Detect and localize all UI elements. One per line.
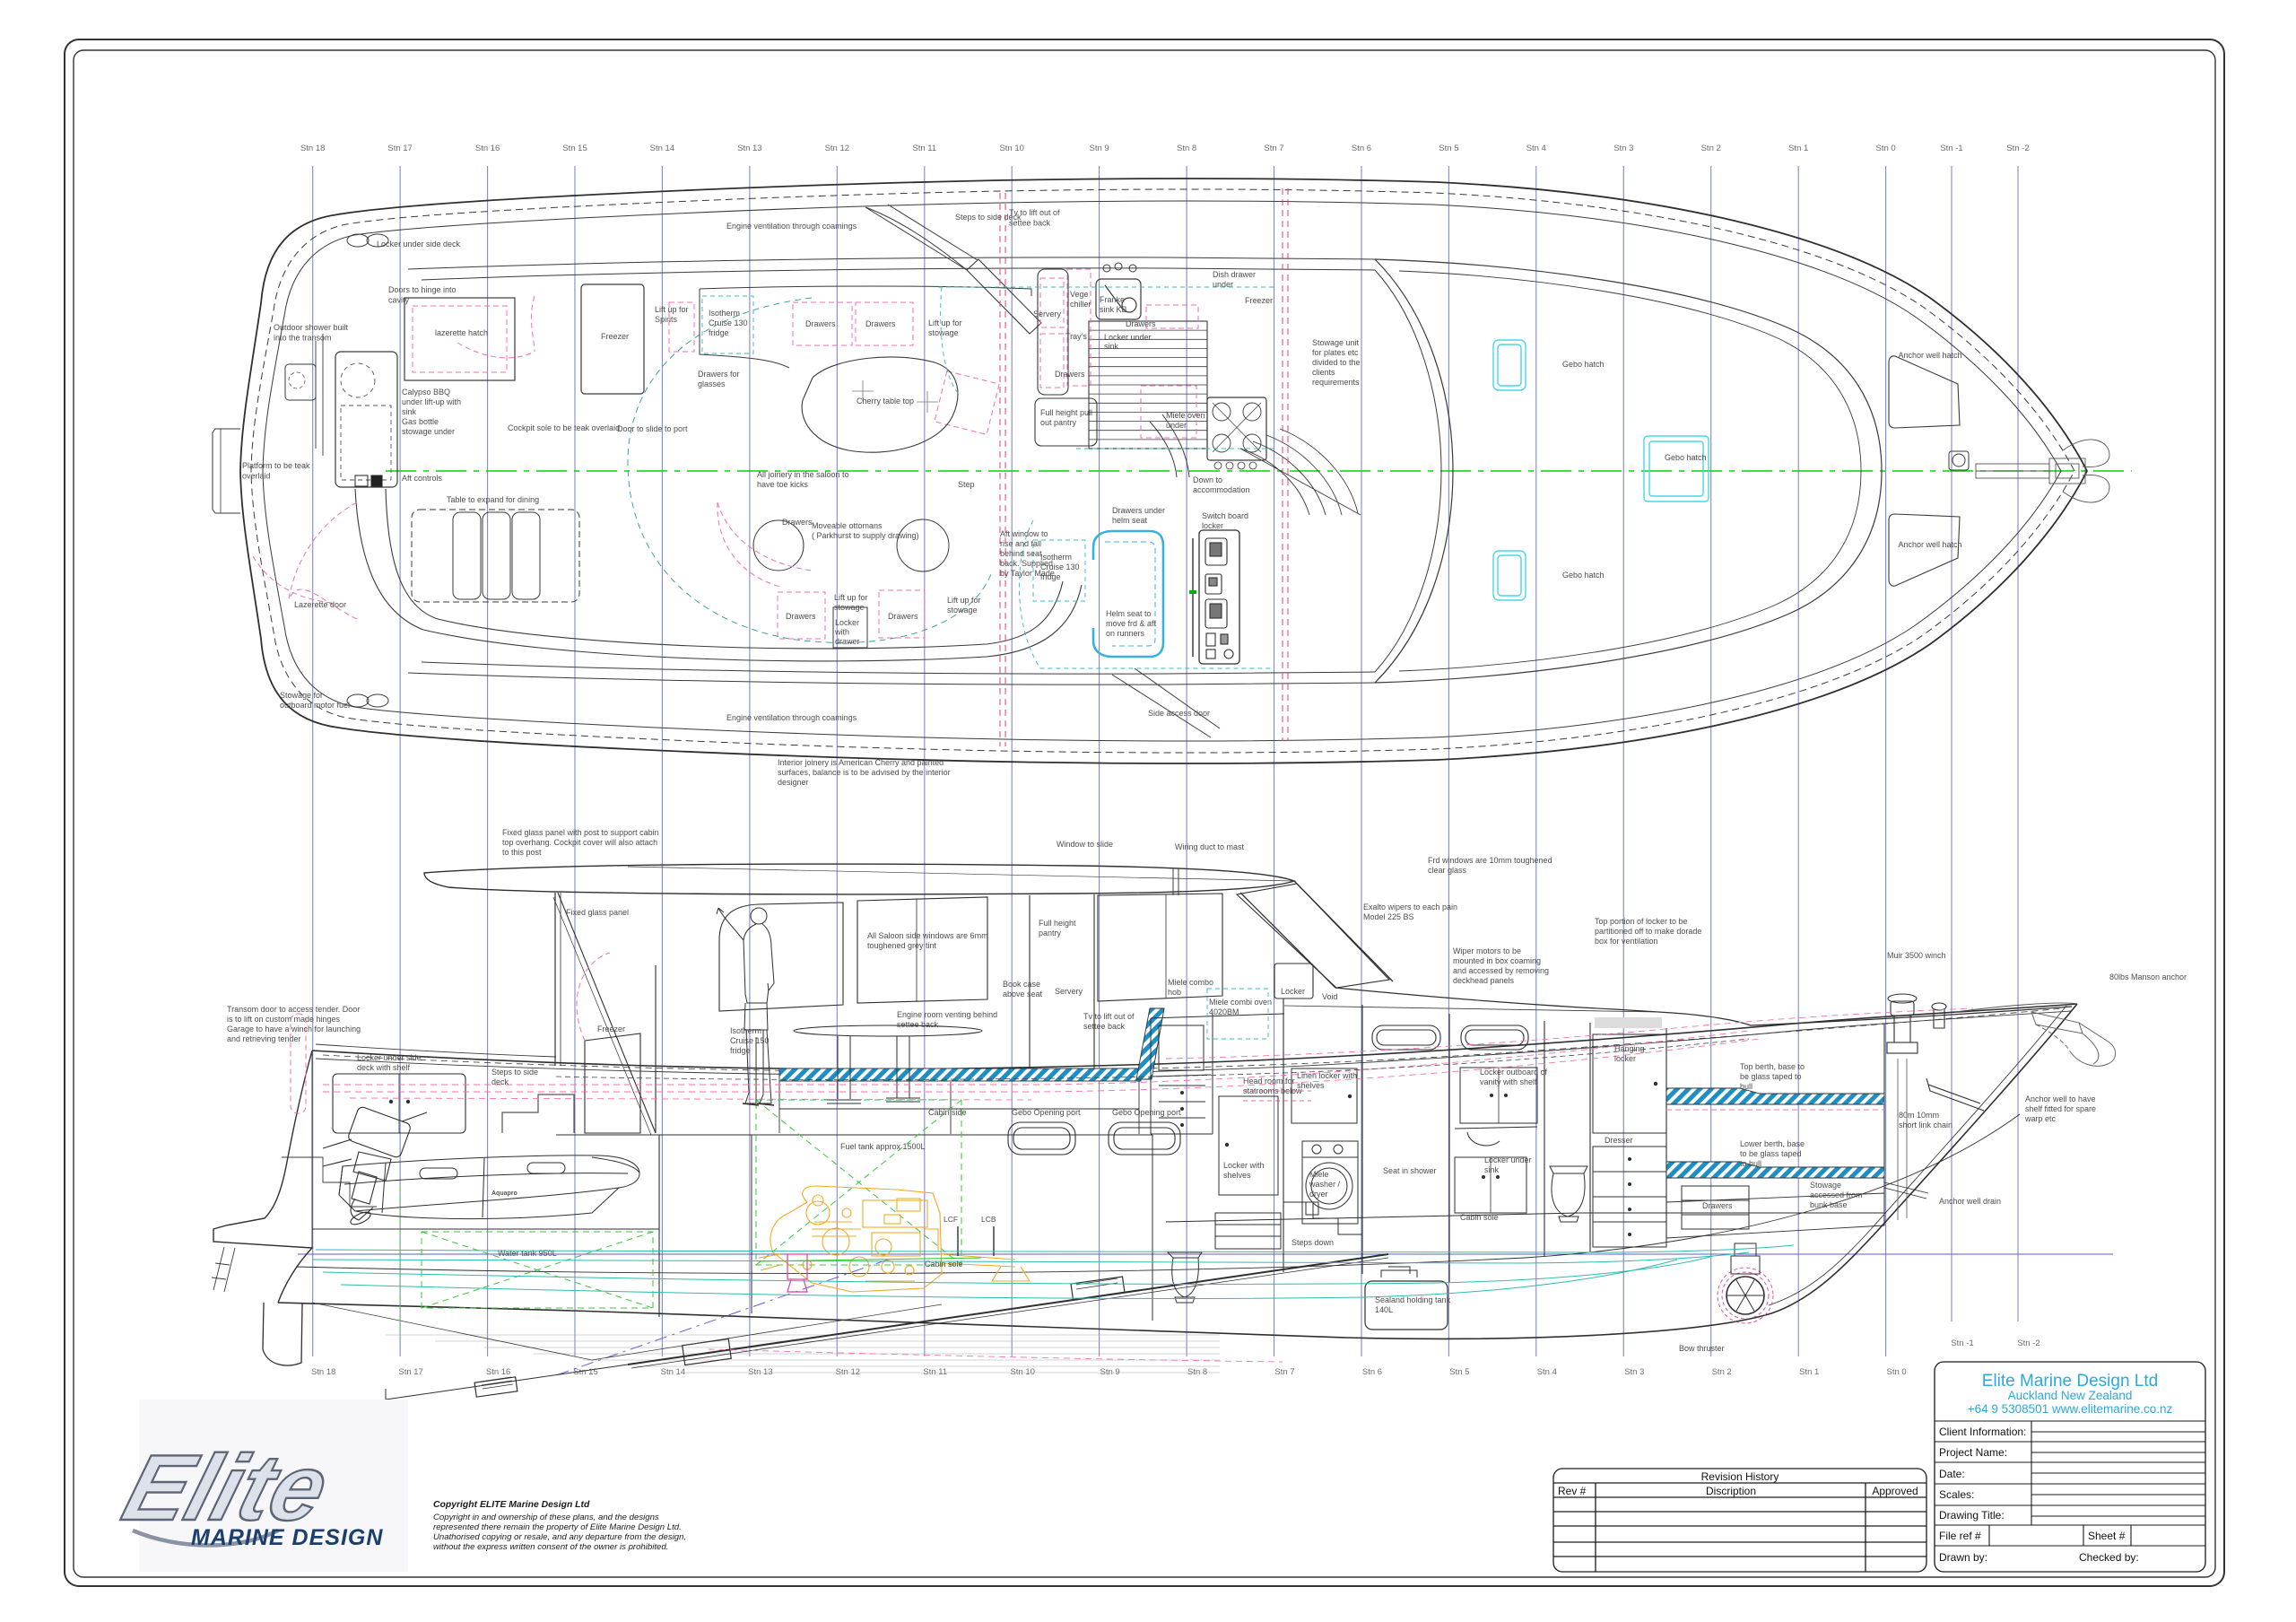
svg-text:Cruise 150: Cruise 150 [730, 1036, 770, 1045]
svg-text:Gebo Opening port: Gebo Opening port [1012, 1108, 1081, 1117]
svg-text:deck with shelf: deck with shelf [357, 1063, 411, 1072]
svg-text:Full height: Full height [1039, 919, 1076, 928]
svg-text:cavity: cavity [388, 296, 410, 305]
svg-text:Lift up for: Lift up for [928, 318, 962, 327]
svg-text:Anchor well hatch: Anchor well hatch [1898, 540, 1961, 549]
svg-text:on runners: on runners [1106, 629, 1145, 638]
svg-text:move frd & aft: move frd & aft [1106, 619, 1157, 628]
svg-text:Fuel tank approx 1500L: Fuel tank approx 1500L [840, 1142, 926, 1151]
svg-text:Anchor well drain: Anchor well drain [1939, 1197, 2001, 1206]
svg-text:warp etc: warp etc [2024, 1114, 2057, 1123]
svg-text:locker: locker [1202, 521, 1223, 530]
svg-text:Stowage for: Stowage for [280, 691, 323, 700]
svg-text:Drawers under: Drawers under [1112, 506, 1165, 515]
svg-text:Fixed glass panel: Fixed glass panel [566, 908, 629, 917]
svg-text:File ref #: File ref # [1939, 1530, 1981, 1542]
svg-text:( Parkhurst to supply drawing): ( Parkhurst to supply drawing) [812, 531, 919, 540]
svg-text:Stn 1: Stn 1 [1799, 1367, 1819, 1377]
svg-text:accessed from: accessed from [1810, 1190, 1863, 1199]
svg-text:Drawers: Drawers [888, 612, 918, 621]
svg-text:requirements: requirements [1312, 378, 1360, 387]
svg-text:Locker under: Locker under [1484, 1155, 1532, 1164]
svg-text:Stn 1: Stn 1 [1788, 144, 1808, 153]
svg-text:Lift up for: Lift up for [655, 305, 689, 314]
svg-text:Vege: Vege [1070, 290, 1089, 299]
svg-text:Stn 18: Stn 18 [300, 144, 325, 153]
svg-text:Lazerette door: Lazerette door [294, 600, 346, 609]
svg-text:Servery: Servery [1033, 310, 1062, 318]
svg-text:vanity with shelf: vanity with shelf [1480, 1077, 1537, 1086]
svg-text:to be glass taped: to be glass taped [1740, 1149, 1802, 1158]
svg-text:Interior joinery is American: Interior joinery is American Cherry and … [778, 758, 944, 767]
svg-text:Lower berth, base: Lower berth, base [1740, 1139, 1805, 1148]
svg-text:Drawn by:: Drawn by: [1939, 1551, 1987, 1564]
svg-text:Bow thruster: Bow thruster [1679, 1344, 1725, 1353]
svg-text:clients: clients [1312, 368, 1335, 377]
svg-text:fridge: fridge [1040, 572, 1061, 581]
svg-text:above seat: above seat [1003, 990, 1043, 998]
svg-text:Stn 8: Stn 8 [1177, 144, 1196, 153]
svg-text:Project Name:: Project Name: [1939, 1446, 2007, 1459]
svg-text:Stn 16: Stn 16 [486, 1367, 510, 1377]
svg-text:Wiring duct to mast: Wiring duct to mast [1175, 842, 1245, 851]
svg-text:LCF: LCF [944, 1215, 958, 1224]
svg-text:Locker outboard of: Locker outboard of [1480, 1068, 1548, 1077]
svg-text:toughened grey tint: toughened grey tint [867, 941, 937, 950]
svg-text:Engine ventilation through coa: Engine ventilation through coamings [726, 222, 857, 231]
svg-text:Top portion of locker to be: Top portion of locker to be [1595, 917, 1688, 926]
svg-text:sink: sink [402, 407, 417, 416]
svg-text:Drawers: Drawers [1702, 1201, 1733, 1210]
svg-text:deck: deck [491, 1077, 509, 1086]
svg-text:Switch board: Switch board [1202, 511, 1248, 520]
svg-text:and accessed by removing: and accessed by removing [1453, 966, 1549, 975]
svg-text:Engine ventilation through coa: Engine ventilation through coamings [726, 713, 857, 722]
svg-text:mounted in box coaming: mounted in box coaming [1453, 956, 1541, 965]
svg-text:Lift up for: Lift up for [834, 593, 868, 602]
svg-text:Stn -2: Stn -2 [2017, 1339, 2039, 1348]
svg-text:fridge: fridge [730, 1046, 751, 1055]
svg-text:Stn 13: Stn 13 [748, 1367, 772, 1377]
svg-text:LCB: LCB [981, 1215, 996, 1224]
svg-text:Stn 2: Stn 2 [1712, 1367, 1732, 1377]
svg-text:Stn 18: Stn 18 [311, 1367, 335, 1377]
svg-text:Stn 9: Stn 9 [1100, 1367, 1120, 1377]
svg-text:Locker: Locker [835, 618, 859, 627]
svg-text:box for ventilation: box for ventilation [1595, 937, 1658, 946]
svg-text:locker: locker [1614, 1054, 1636, 1063]
svg-text:4020BM: 4020BM [1209, 1007, 1239, 1016]
svg-text:lazerette hatch: lazerette hatch [435, 328, 488, 337]
svg-text:washer /: washer / [1309, 1180, 1341, 1189]
svg-text:Miele: Miele [1309, 1170, 1329, 1179]
svg-text:clear glass: clear glass [1428, 866, 1467, 875]
svg-text:sink KB: sink KB [1100, 305, 1127, 314]
svg-text:Void: Void [1322, 992, 1338, 1001]
svg-text:Stn 6: Stn 6 [1362, 1367, 1382, 1377]
svg-text:Aquapro: Aquapro [491, 1190, 517, 1197]
svg-text:Stn 12: Stn 12 [836, 1367, 860, 1377]
svg-text:Spirits: Spirits [655, 315, 678, 324]
svg-text:sink: sink [1104, 342, 1119, 351]
svg-text:Stn 17: Stn 17 [398, 1367, 422, 1377]
svg-text:Side access door: Side access door [1148, 709, 1210, 718]
svg-text:All joinery in the saloon to: All joinery in the saloon to [757, 470, 849, 479]
svg-text:All Saloon side windows are 6m: All Saloon side windows are 6mm [867, 931, 988, 940]
svg-text:Engine room venting behind: Engine room venting behind [897, 1010, 997, 1019]
svg-text:Window to slide: Window to slide [1057, 840, 1113, 849]
svg-text:into the transom: into the transom [274, 334, 332, 343]
svg-text:Full height pull: Full height pull [1040, 408, 1092, 417]
svg-text:Checked by:: Checked by: [2079, 1551, 2139, 1564]
svg-text:is to lift on custom made hing: is to lift on custom made hinges [227, 1015, 341, 1024]
svg-text:with: with [834, 628, 849, 637]
svg-text:without the express written co: without the express written consent of t… [433, 1542, 668, 1552]
svg-text:Locker under side: Locker under side [357, 1053, 422, 1062]
svg-text:Gebo hatch: Gebo hatch [1665, 453, 1707, 462]
svg-text:Exalto wipers to each pain: Exalto wipers to each pain [1363, 903, 1457, 911]
svg-text:Calypso BBQ: Calypso BBQ [402, 388, 450, 397]
svg-text:Drawers for: Drawers for [698, 370, 740, 379]
svg-text:Stn 3: Stn 3 [1624, 1367, 1644, 1377]
svg-text:bunk base: bunk base [1810, 1200, 1848, 1209]
svg-text:Franke: Franke [1100, 295, 1125, 304]
svg-text:sink: sink [1484, 1165, 1500, 1174]
svg-text:Top berth, base to: Top berth, base to [1740, 1062, 1805, 1071]
svg-text:under lift-up with: under lift-up with [402, 397, 461, 406]
svg-text:Isotherm: Isotherm [730, 1026, 761, 1035]
svg-text:Miele oven: Miele oven [1166, 411, 1205, 420]
svg-text:Model 225 BS: Model 225 BS [1363, 912, 1414, 921]
svg-text:Transom door to access tender.: Transom door to access tender. Door [227, 1005, 360, 1014]
svg-text:Tray's: Tray's [1065, 332, 1087, 341]
svg-text:Gebo hatch: Gebo hatch [1562, 571, 1605, 580]
svg-text:Drawers: Drawers [782, 518, 813, 527]
svg-text:Seat in shower: Seat in shower [1383, 1166, 1437, 1175]
svg-text:Stn 16: Stn 16 [475, 144, 500, 153]
svg-text:Door to slide to port: Door to slide to port [617, 424, 688, 433]
svg-text:Cockpit sole to be teak overla: Cockpit sole to be teak overlaid [508, 423, 620, 432]
svg-text:helm seat: helm seat [1112, 516, 1148, 525]
svg-text:rise and fall: rise and fall [1000, 539, 1041, 548]
svg-text:settee back: settee back [1083, 1022, 1126, 1031]
svg-text:Steps down: Steps down [1291, 1238, 1334, 1247]
svg-text:Doors to hinge into: Doors to hinge into [388, 285, 457, 294]
svg-text:out pantry: out pantry [1040, 418, 1077, 427]
svg-text:Date:: Date: [1939, 1468, 1965, 1480]
svg-text:Stn 17: Stn 17 [387, 144, 412, 153]
svg-text:Stn 7: Stn 7 [1274, 1367, 1294, 1377]
svg-text:Linen locker with: Linen locker with [1297, 1071, 1357, 1080]
svg-text:Stn 8: Stn 8 [1187, 1367, 1207, 1377]
svg-text:settee back: settee back [897, 1020, 939, 1029]
svg-text:stowage under: stowage under [402, 427, 455, 436]
svg-text:Lift up for: Lift up for [947, 596, 981, 605]
svg-text:Step: Step [958, 480, 975, 489]
svg-text:stowage: stowage [834, 603, 865, 612]
svg-text:Stn 0: Stn 0 [1876, 144, 1896, 153]
svg-text:stowage: stowage [928, 328, 959, 337]
svg-text:Stn 11: Stn 11 [912, 144, 936, 153]
svg-text:Stn 12: Stn 12 [825, 144, 849, 153]
svg-text:+64 9 5308501 www.elitemarine.: +64 9 5308501 www.elitemarine.co.nz [1968, 1402, 2173, 1416]
svg-text:Fixed glass panel with post to: Fixed glass panel with post to support c… [502, 828, 659, 837]
svg-text:Stn 6: Stn 6 [1352, 144, 1371, 153]
svg-text:MARINE DESIGN: MARINE DESIGN [191, 1525, 383, 1550]
svg-text:stowage: stowage [947, 606, 978, 615]
svg-text:Miele combi oven: Miele combi oven [1209, 998, 1272, 1007]
svg-text:dryer: dryer [1309, 1190, 1328, 1199]
svg-text:Stn 14: Stn 14 [650, 144, 674, 153]
svg-text:Anchor well hatch: Anchor well hatch [1898, 351, 1961, 360]
svg-text:Cabin sole: Cabin sole [1460, 1213, 1499, 1222]
svg-text:pantry: pantry [1039, 929, 1062, 937]
svg-text:to hull: to hull [1740, 1159, 1761, 1168]
svg-text:Gas bottle: Gas bottle [402, 417, 439, 426]
svg-text:Stn -1: Stn -1 [1951, 1339, 1973, 1348]
svg-text:Locker under: Locker under [1104, 333, 1152, 342]
svg-text:Copyright in and ownership of: Copyright in and ownership of these plan… [433, 1513, 659, 1522]
svg-text:Gebo Opening port: Gebo Opening port [1112, 1108, 1181, 1117]
svg-text:Wiper motors to be: Wiper motors to be [1453, 946, 1521, 955]
svg-text:Aft controls: Aft controls [402, 474, 443, 483]
svg-text:Hanging: Hanging [1614, 1044, 1645, 1053]
svg-text:Tv to lift out of: Tv to lift out of [1083, 1012, 1135, 1021]
svg-text:Stn 10: Stn 10 [1010, 1367, 1034, 1377]
svg-text:represented there remain the p: represented there remain the property of… [433, 1522, 682, 1532]
svg-text:Drawers: Drawers [805, 319, 836, 328]
svg-text:Stn 15: Stn 15 [562, 144, 587, 153]
svg-text:80lbs Manson anchor: 80lbs Manson anchor [2109, 972, 2187, 981]
svg-text:Scales:: Scales: [1939, 1488, 1974, 1501]
svg-text:Servery: Servery [1055, 987, 1083, 996]
svg-text:deckhead panels: deckhead panels [1453, 976, 1515, 985]
svg-text:Isotherm: Isotherm [1040, 553, 1072, 562]
svg-text:Stn -1: Stn -1 [1940, 144, 1962, 153]
svg-text:Locker with: Locker with [1223, 1161, 1265, 1170]
svg-text:Elite Marine Design Ltd: Elite Marine Design Ltd [1982, 1372, 2158, 1391]
svg-text:Copyright ELITE Marine Design: Copyright ELITE Marine Design Ltd [433, 1500, 590, 1510]
svg-text:Unathorised copying or resale,: Unathorised copying or resale, and any d… [433, 1532, 686, 1542]
svg-text:Stn -2: Stn -2 [2006, 144, 2029, 153]
svg-text:Stn 2: Stn 2 [1701, 144, 1721, 153]
svg-text:chiller: chiller [1070, 300, 1091, 309]
svg-text:hob: hob [1168, 988, 1181, 997]
svg-text:Freezer: Freezer [597, 1025, 625, 1033]
svg-text:be glass taped to: be glass taped to [1740, 1072, 1802, 1081]
svg-text:Table to expand for dining: Table to expand for dining [447, 495, 539, 504]
svg-text:surfaces, balance is to be adv: surfaces, balance is to be advised by th… [778, 768, 951, 777]
svg-text:Dresser: Dresser [1605, 1136, 1633, 1145]
svg-text:Down to: Down to [1193, 475, 1222, 484]
svg-text:Sheet #: Sheet # [2088, 1530, 2126, 1542]
svg-text:Sealand holding tank: Sealand holding tank [1375, 1295, 1451, 1304]
svg-text:shelves: shelves [1223, 1171, 1251, 1180]
svg-text:Platform to be teak: Platform to be teak [242, 461, 310, 470]
svg-text:glasses: glasses [698, 379, 726, 388]
svg-text:Stn 4: Stn 4 [1526, 144, 1546, 153]
svg-text:Stn 7: Stn 7 [1264, 144, 1283, 153]
svg-text:Locker: Locker [1281, 987, 1305, 996]
svg-text:Revision History: Revision History [1701, 1470, 1779, 1483]
svg-text:Muir 3500 winch: Muir 3500 winch [1887, 951, 1946, 960]
svg-text:Helm seat to: Helm seat to [1106, 609, 1152, 618]
svg-text:Gebo hatch: Gebo hatch [1562, 360, 1605, 369]
svg-text:accommodation: accommodation [1193, 485, 1250, 494]
svg-text:to this post: to this post [502, 848, 542, 857]
svg-text:Stn 14: Stn 14 [661, 1367, 685, 1377]
svg-text:Cruise 130: Cruise 130 [1040, 562, 1080, 571]
svg-text:behind seat: behind seat [1000, 549, 1042, 558]
svg-text:Book case: Book case [1003, 980, 1040, 989]
svg-text:outboard motor fuel: outboard motor fuel [280, 701, 350, 710]
svg-text:Approved: Approved [1872, 1485, 1918, 1497]
svg-text:Drawers: Drawers [865, 319, 896, 328]
svg-text:fridge: fridge [709, 328, 729, 337]
svg-text:designer: designer [778, 778, 809, 787]
svg-text:Stn 10: Stn 10 [999, 144, 1023, 153]
svg-text:Stn 11: Stn 11 [923, 1367, 947, 1377]
svg-text:Miele combo: Miele combo [1168, 978, 1213, 987]
svg-text:Rev #: Rev # [1558, 1485, 1587, 1497]
svg-text:80m 10mm: 80m 10mm [1899, 1111, 1939, 1120]
svg-text:have toe kicks: have toe kicks [757, 480, 809, 489]
svg-text:under: under [1166, 421, 1187, 430]
svg-text:partitioned off to make dorade: partitioned off to make dorade [1595, 927, 1701, 936]
svg-text:Aft window to: Aft window to [1000, 529, 1048, 538]
svg-text:overlaid: overlaid [242, 472, 271, 481]
svg-text:Auckland New Zealand: Auckland New Zealand [2008, 1389, 2133, 1402]
svg-text:Tv to lift out of: Tv to lift out of [1009, 208, 1060, 217]
svg-text:Drawers: Drawers [1126, 319, 1156, 328]
svg-text:hull: hull [1740, 1082, 1752, 1091]
svg-text:Cruise 130: Cruise 130 [709, 318, 748, 327]
svg-text:Stn 4: Stn 4 [1537, 1367, 1557, 1377]
svg-text:drawer: drawer [835, 637, 860, 646]
svg-text:Locker under side deck: Locker under side deck [377, 240, 461, 249]
svg-text:Steps to side: Steps to side [491, 1068, 538, 1077]
svg-text:Stn 5: Stn 5 [1439, 144, 1458, 153]
svg-text:Drawing Title:: Drawing Title: [1939, 1509, 2005, 1522]
svg-text:Discription: Discription [1706, 1485, 1756, 1497]
svg-text:Freezer: Freezer [601, 332, 629, 341]
svg-text:for plates etc: for plates etc [1312, 348, 1359, 357]
svg-text:Moveable ottomans: Moveable ottomans [812, 521, 883, 530]
svg-text:Garage to have a winch for lau: Garage to have a winch for launching [227, 1025, 361, 1033]
svg-text:Freezer: Freezer [1245, 296, 1273, 305]
svg-text:under: under [1213, 280, 1233, 289]
svg-text:Stn 0: Stn 0 [1887, 1367, 1907, 1377]
svg-text:Cabin side: Cabin side [928, 1108, 967, 1117]
svg-text:Stowage: Stowage [1810, 1181, 1841, 1190]
svg-text:Outdoor shower built: Outdoor shower built [274, 323, 349, 332]
svg-text:Stn 13: Stn 13 [737, 144, 761, 153]
svg-text:divided to the: divided to the [1312, 358, 1361, 367]
svg-text:Anchor well to have: Anchor well to have [2025, 1094, 2096, 1103]
svg-text:Drawers: Drawers [786, 612, 816, 621]
svg-text:shelf fitted for spare: shelf fitted for spare [2025, 1104, 2096, 1113]
svg-text:Stn 9: Stn 9 [1090, 144, 1109, 153]
svg-text:Cherry table top: Cherry table top [857, 397, 914, 405]
svg-text:Stn 5: Stn 5 [1449, 1367, 1469, 1377]
svg-text:short link chain: short link chain [1899, 1121, 1952, 1129]
svg-text:Dish drawer: Dish drawer [1213, 270, 1256, 279]
svg-text:Client Information:: Client Information: [1939, 1426, 2026, 1438]
svg-text:top overhang. Cockpit cover wi: top overhang. Cockpit cover will also at… [502, 838, 657, 847]
svg-text:and retrieving tender: and retrieving tender [227, 1034, 301, 1043]
svg-text:Stowage unit: Stowage unit [1312, 338, 1360, 347]
svg-text:Frd windows are 10mm toughened: Frd windows are 10mm toughened [1428, 856, 1552, 865]
svg-text:Drawers: Drawers [1055, 370, 1085, 379]
svg-text:settee back: settee back [1009, 219, 1051, 228]
svg-text:Stn 3: Stn 3 [1613, 144, 1633, 153]
svg-text:140L: 140L [1375, 1305, 1393, 1314]
svg-text:Cabin sole: Cabin sole [925, 1260, 963, 1269]
svg-text:Isotherm: Isotherm [709, 309, 740, 318]
svg-text:Water tank 950L: Water tank 950L [498, 1249, 557, 1258]
svg-text:Head room for: Head room for [1243, 1077, 1295, 1086]
